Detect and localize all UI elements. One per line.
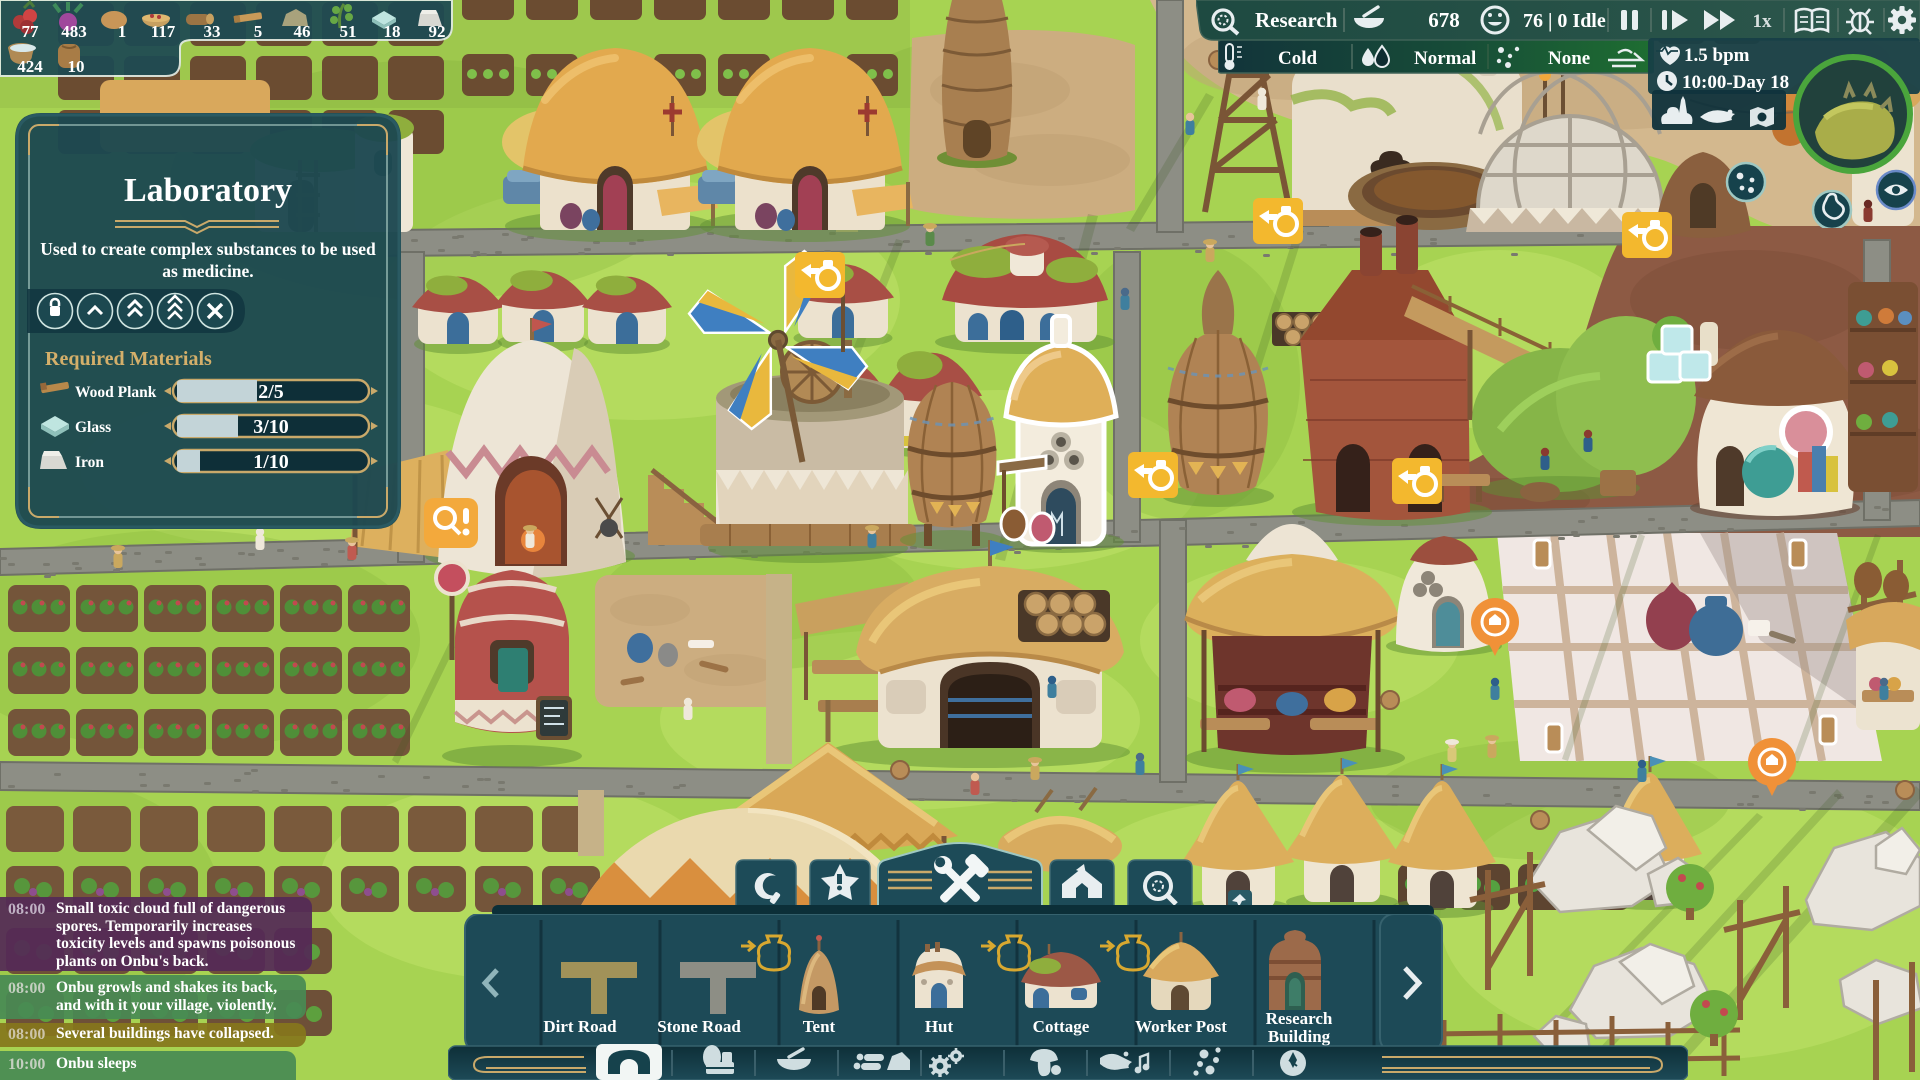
svg-text:678: 678: [1428, 8, 1460, 32]
svg-text:Dirt Road: Dirt Road: [543, 1017, 617, 1036]
svg-text:Required Materials: Required Materials: [45, 348, 212, 370]
svg-text:1x: 1x: [1753, 11, 1773, 32]
svg-text:483: 483: [61, 22, 87, 41]
svg-text:Used to create complex substan: Used to create complex substances to be …: [40, 239, 376, 259]
svg-text:Cold: Cold: [1278, 48, 1318, 69]
svg-text:424: 424: [17, 57, 43, 76]
svg-text:2/5: 2/5: [258, 381, 284, 403]
svg-text:Research: Research: [1255, 8, 1338, 32]
svg-text:76 | 0 Idle: 76 | 0 Idle: [1523, 10, 1606, 32]
svg-text:as medicine.: as medicine.: [162, 261, 253, 281]
svg-text:Laboratory: Laboratory: [124, 172, 292, 209]
svg-text:Iron: Iron: [75, 454, 104, 471]
svg-text:Research: Research: [1266, 1009, 1333, 1028]
svg-text:18: 18: [384, 22, 401, 41]
svg-text:Normal: Normal: [1414, 48, 1476, 69]
svg-text:1/10: 1/10: [253, 451, 289, 473]
svg-text:Glass: Glass: [75, 419, 111, 436]
svg-text:1: 1: [118, 22, 127, 41]
svg-text:Worker Post: Worker Post: [1135, 1017, 1227, 1036]
svg-text:5: 5: [254, 22, 263, 41]
svg-text:Hut: Hut: [925, 1017, 954, 1036]
svg-text:77: 77: [22, 22, 40, 41]
svg-text:None: None: [1548, 48, 1590, 69]
svg-text:3/10: 3/10: [253, 416, 289, 438]
svg-text:46: 46: [294, 22, 311, 41]
svg-text:Tent: Tent: [803, 1017, 836, 1036]
svg-text:Cottage: Cottage: [1033, 1017, 1090, 1036]
svg-text:92: 92: [429, 22, 446, 41]
svg-text:117: 117: [151, 22, 176, 41]
svg-text:Stone Road: Stone Road: [657, 1017, 741, 1036]
svg-text:Wood Plank: Wood Plank: [75, 384, 157, 401]
svg-text:51: 51: [340, 22, 357, 41]
svg-text:10: 10: [68, 57, 85, 76]
svg-text:33: 33: [204, 22, 221, 41]
